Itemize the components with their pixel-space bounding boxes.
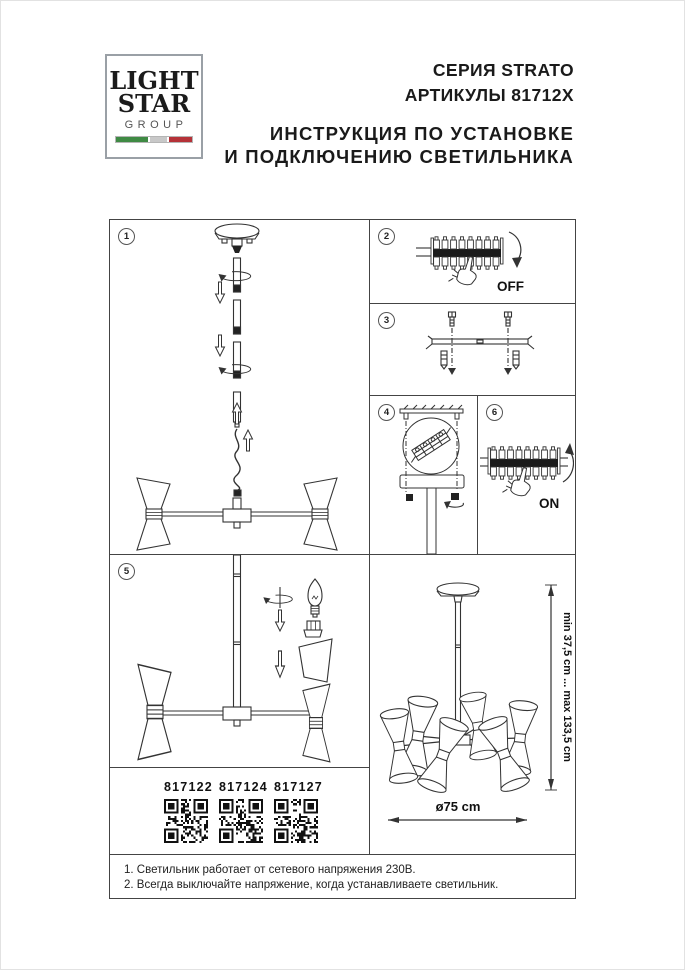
step-number-badge: 5 xyxy=(118,563,135,580)
panel-step5-shade-bulb-assembly: 5 xyxy=(110,555,370,767)
logo-word-group: GROUP xyxy=(125,119,188,131)
series-name: СЕРИЯ STRATO xyxy=(224,58,574,83)
note-line-2: 2. Всегда выключайте напряжение, когда у… xyxy=(124,878,575,893)
step-number-badge: 3 xyxy=(378,312,395,329)
panel-step1-rod-assembly: 1 xyxy=(110,220,370,555)
instruction-title-line2: И ПОДКЛЮЧЕНИЮ СВЕТИЛЬНИКА xyxy=(224,145,574,168)
flag-green-segment xyxy=(116,137,148,142)
bracket-diagram xyxy=(370,304,575,395)
qr-code-area: 817122 817124 817127 xyxy=(110,767,370,854)
height-dimension-label: min 37,5 cm ... max 133,5 cm xyxy=(561,612,573,762)
qr-code xyxy=(219,799,263,843)
step-number-badge: 6 xyxy=(486,404,503,421)
lightstar-logo: LIGHT STAR GROUP xyxy=(105,54,203,159)
instruction-title-line1: ИНСТРУКЦИЯ ПО УСТАНОВКЕ xyxy=(224,122,574,145)
article-code-label: 817127 xyxy=(274,780,318,794)
italian-flag-stripe xyxy=(115,136,193,143)
panel-step4-canopy-mounting: 4 xyxy=(370,396,478,555)
step-number-badge: 2 xyxy=(378,228,395,245)
qr-code xyxy=(164,799,208,843)
rod-assembly-diagram xyxy=(110,220,368,553)
step-number-badge: 1 xyxy=(118,228,135,245)
diagram-grid: 1 xyxy=(109,219,576,899)
logo-word-star: STAR xyxy=(118,93,190,115)
flag-silver-segment xyxy=(150,137,167,142)
note-line-1: 1. Светильник работает от сетевого напря… xyxy=(124,863,575,878)
qr-code xyxy=(274,799,318,843)
panel-step2-power-off: 2 OFF xyxy=(370,220,575,304)
header-text: СЕРИЯ STRATO АРТИКУЛЫ 81712X ИНСТРУКЦИЯ … xyxy=(224,58,574,168)
breaker-off-diagram: OFF xyxy=(370,220,575,303)
article-code-label: 817124 xyxy=(219,780,263,794)
panel-dimensions: min 37,5 cm ... max 133,5 cm ø75 cm xyxy=(370,555,575,854)
instruction-sheet: LIGHT STAR GROUP СЕРИЯ STRATO АРТИКУЛЫ 8… xyxy=(0,0,685,970)
qr-item: 817124 xyxy=(219,780,263,848)
flag-red-segment xyxy=(169,137,192,142)
diameter-dimension-label: ø75 cm xyxy=(436,799,481,814)
off-label: OFF xyxy=(497,279,524,294)
chandelier-dimensions-diagram: min 37,5 cm ... max 133,5 cm ø75 cm xyxy=(370,555,575,854)
article-code-label: 817122 xyxy=(164,780,208,794)
article-numbers: АРТИКУЛЫ 81712X xyxy=(224,83,574,108)
on-label: ON xyxy=(539,496,559,511)
shade-assembly-diagram xyxy=(110,555,368,767)
safety-notes: 1. Светильник работает от сетевого напря… xyxy=(110,854,575,898)
panel-step6-power-on: 6 ON xyxy=(478,396,575,555)
qr-item: 817127 xyxy=(274,780,318,848)
qr-item: 817122 xyxy=(164,780,208,848)
panel-step3-bracket: 3 xyxy=(370,304,575,396)
step-number-badge: 4 xyxy=(378,404,395,421)
